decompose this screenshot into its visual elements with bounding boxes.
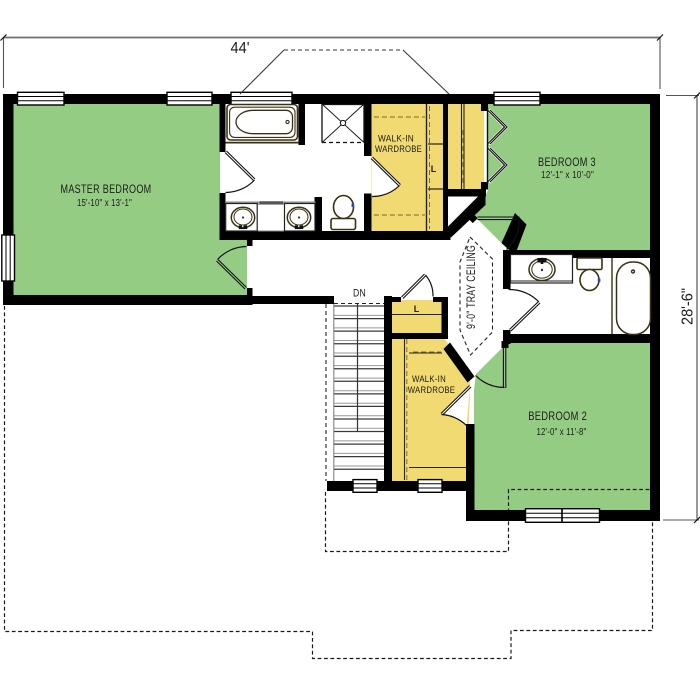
svg-text:12'-1" x 10'-0": 12'-1" x 10'-0" [541, 170, 594, 181]
svg-text:9'-0" TRAY CEILING: 9'-0" TRAY CEILING [464, 245, 478, 329]
svg-text:WARDROBE: WARDROBE [408, 385, 456, 396]
svg-text:28'-6": 28'-6" [680, 288, 697, 325]
svg-text:DN: DN [353, 287, 366, 299]
svg-text:BEDROOM 3: BEDROOM 3 [538, 157, 596, 169]
svg-text:BEDROOM 2: BEDROOM 2 [528, 411, 587, 423]
svg-text:L: L [431, 164, 437, 174]
svg-text:44': 44' [231, 40, 250, 57]
svg-text:12'-0" x 11'-8": 12'-0" x 11'-8" [537, 427, 587, 438]
svg-text:L: L [414, 304, 420, 314]
svg-text:MASTER BEDROOM: MASTER BEDROOM [61, 184, 152, 196]
svg-text:15'-10" x 13'-1": 15'-10" x 13'-1" [77, 198, 132, 209]
svg-text:WARDROBE: WARDROBE [375, 144, 422, 155]
svg-text:WALK-IN: WALK-IN [412, 374, 446, 385]
svg-text:WALK-IN: WALK-IN [378, 134, 414, 145]
